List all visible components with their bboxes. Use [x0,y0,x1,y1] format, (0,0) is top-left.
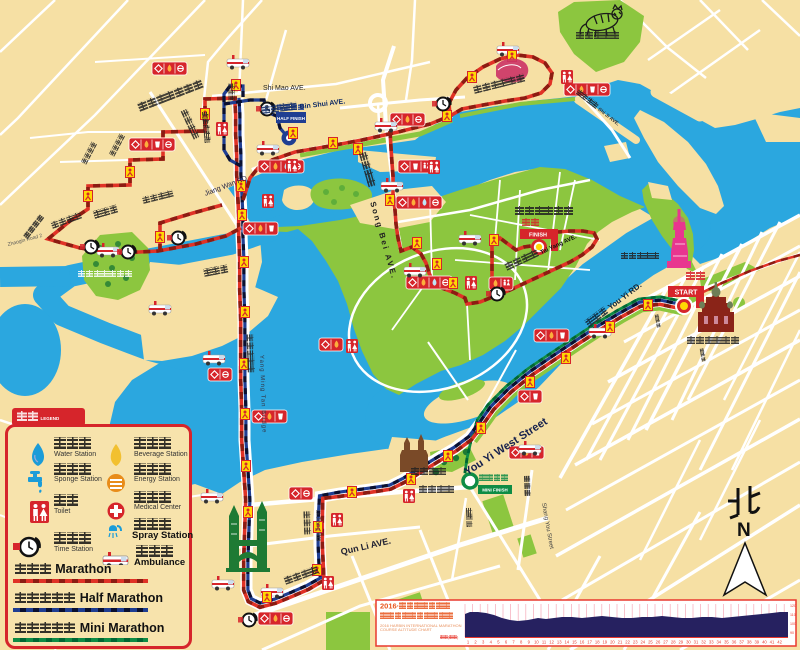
svg-text:22: 22 [625,640,630,645]
svg-text:13: 13 [557,640,562,645]
svg-text:11: 11 [542,640,547,645]
svg-text:35: 35 [724,640,729,645]
svg-text:41: 41 [770,640,775,645]
svg-text:27: 27 [663,640,668,645]
svg-text:33: 33 [709,640,714,645]
svg-text:24: 24 [640,640,645,645]
svg-text:FINISH: FINISH [529,233,547,239]
svg-text:N: N [737,520,751,541]
svg-text:39: 39 [754,640,759,645]
svg-text:19: 19 [602,640,607,645]
svg-text:20: 20 [610,640,615,645]
svg-text:18: 18 [595,640,600,645]
svg-text:12: 12 [549,640,554,645]
svg-text:HALF FINISH: HALF FINISH [277,116,305,121]
svg-text:16: 16 [580,640,585,645]
svg-text:START: START [675,290,699,297]
svg-text:23: 23 [633,640,638,645]
svg-text:10: 10 [534,640,539,645]
svg-text:26: 26 [656,640,661,645]
svg-text:40: 40 [762,640,767,645]
svg-text:32: 32 [701,640,706,645]
svg-text:14: 14 [564,640,569,645]
svg-text:36: 36 [732,640,737,645]
svg-text:110: 110 [790,613,796,617]
svg-text:42: 42 [777,640,782,645]
svg-text:15: 15 [572,640,577,645]
svg-text:21: 21 [618,640,623,645]
svg-text:90: 90 [790,631,794,635]
svg-text:25: 25 [648,640,653,645]
svg-text:34: 34 [716,640,721,645]
svg-text:37: 37 [739,640,744,645]
svg-text:31: 31 [694,640,699,645]
svg-text:38: 38 [747,640,752,645]
svg-text:28: 28 [671,640,676,645]
svg-text:120: 120 [790,604,796,608]
svg-text:MINI FINISH: MINI FINISH [482,488,508,493]
svg-text:29: 29 [678,640,683,645]
svg-text:30: 30 [686,640,691,645]
svg-text:17: 17 [587,640,592,645]
svg-text:100: 100 [790,622,796,626]
